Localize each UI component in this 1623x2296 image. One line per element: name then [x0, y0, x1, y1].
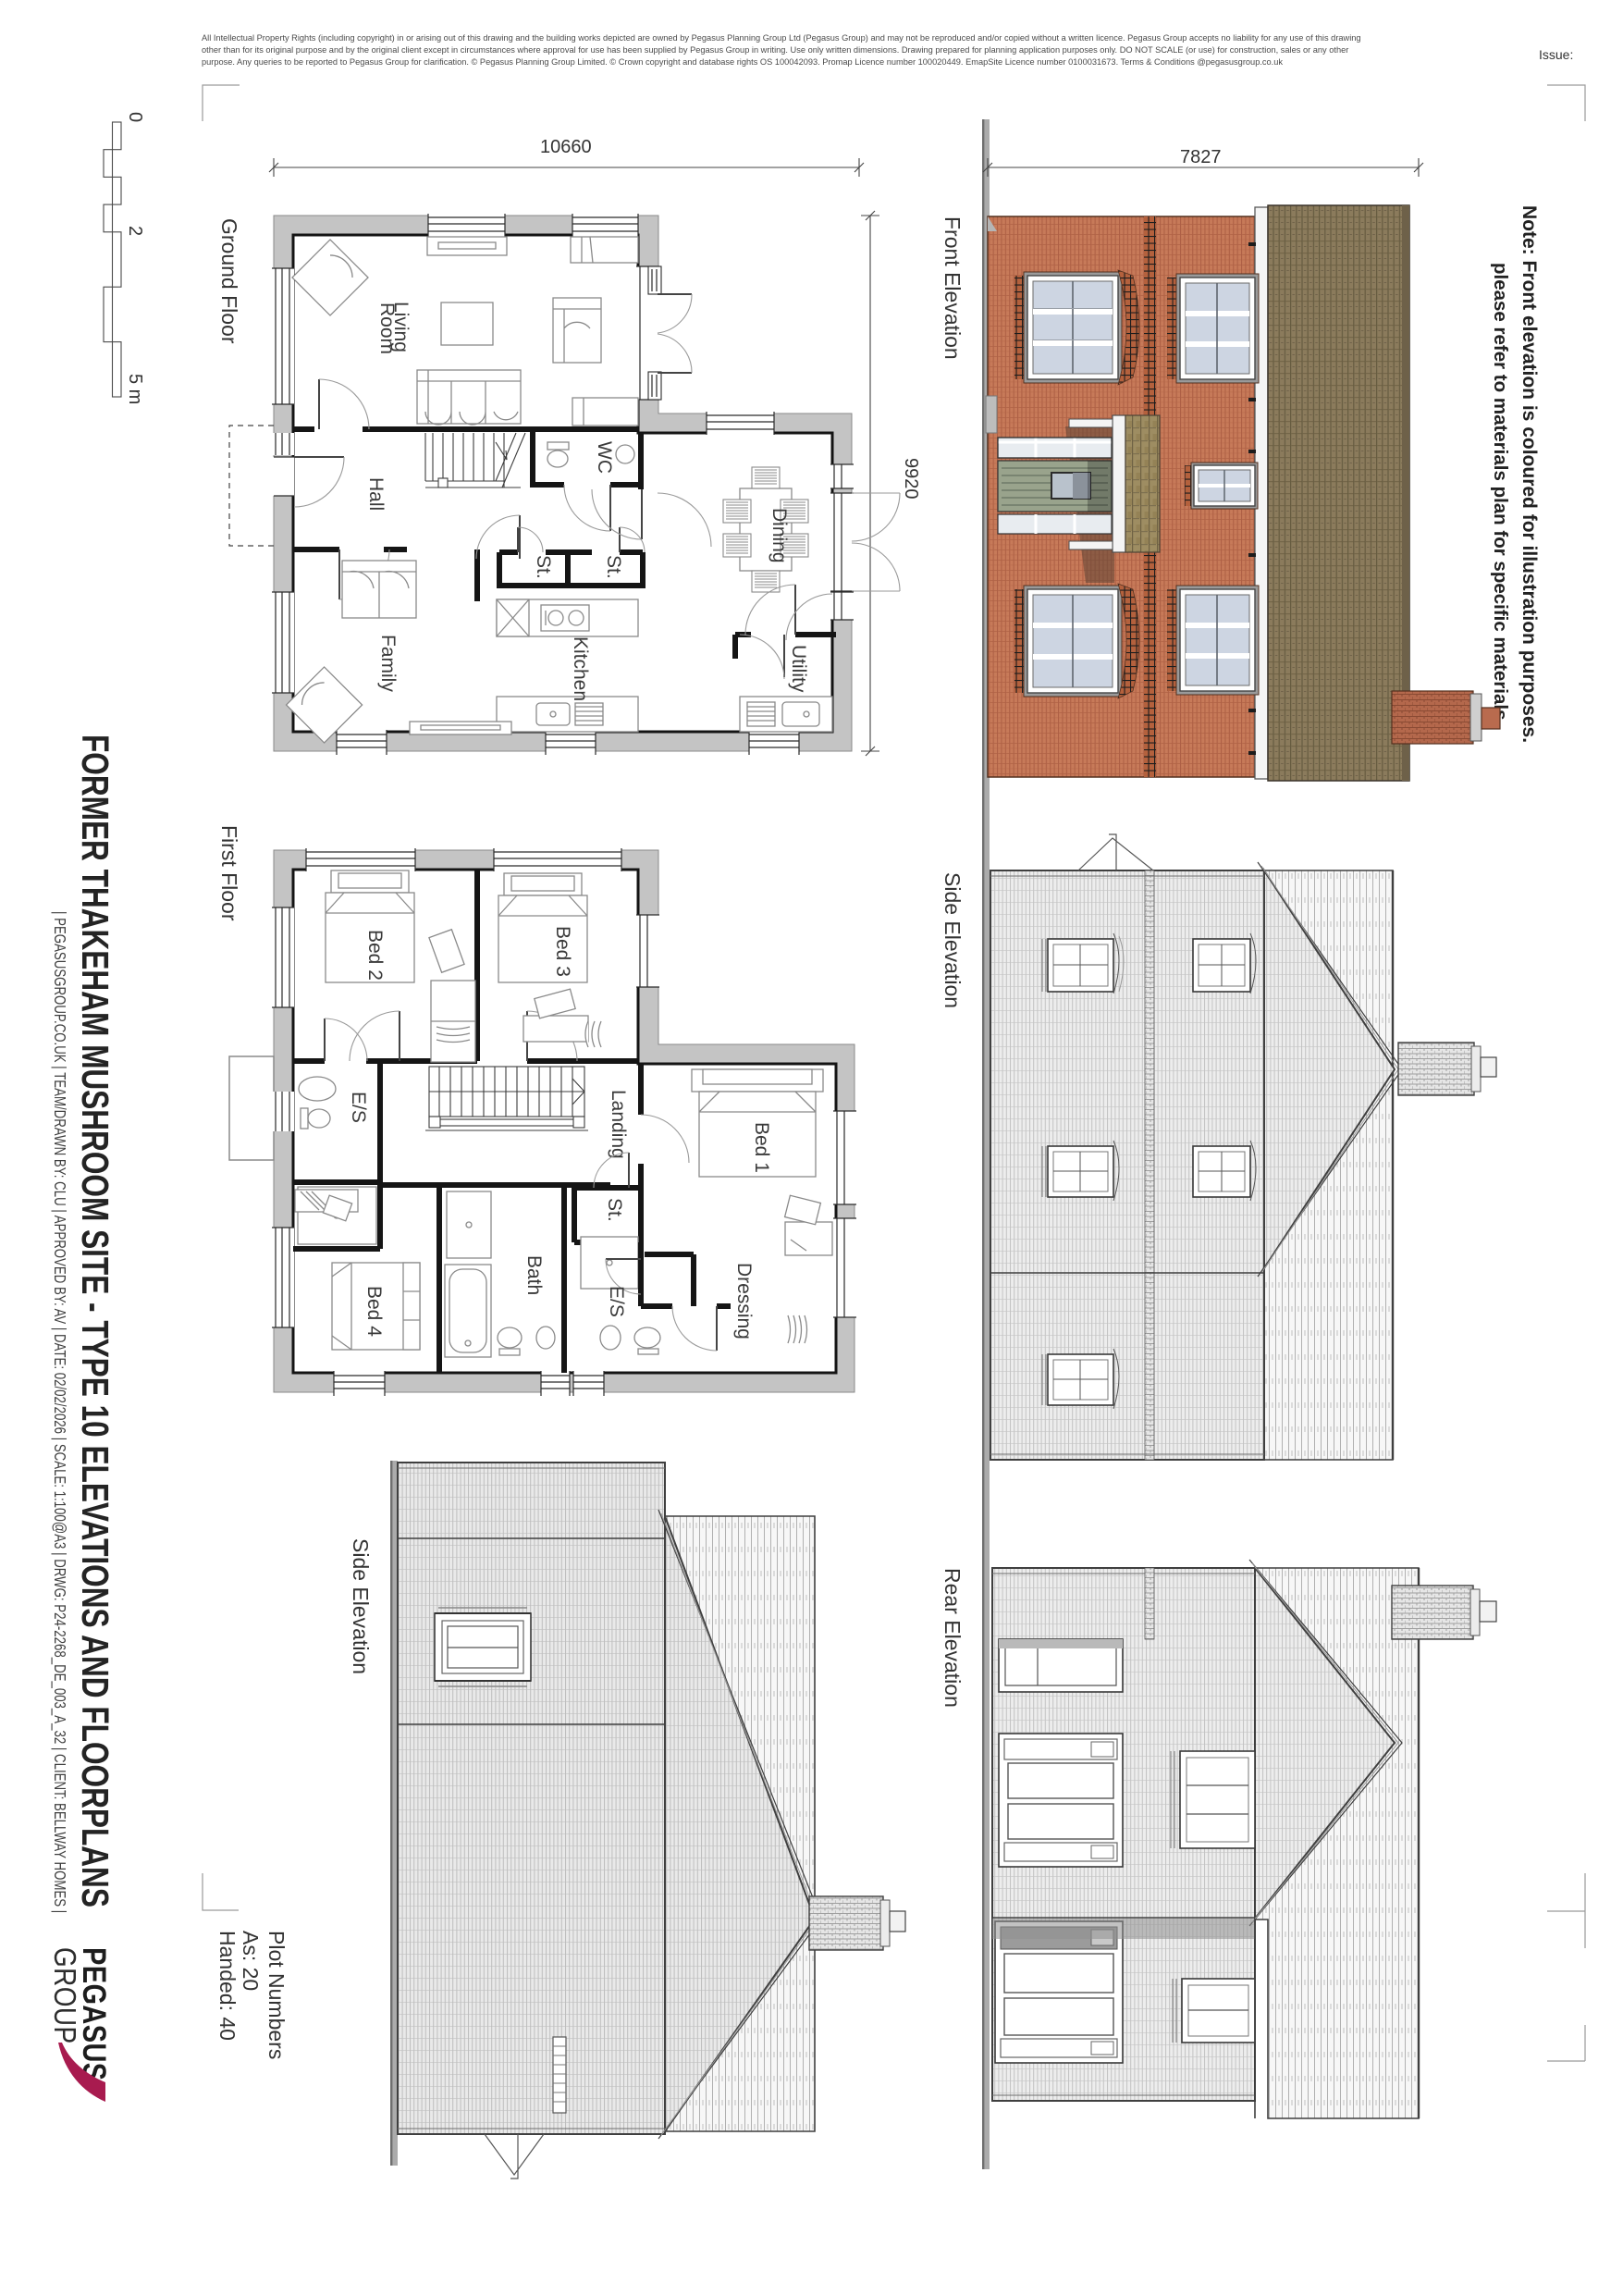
svg-text:10660: 10660	[540, 137, 592, 157]
svg-text:9920: 9920	[901, 458, 921, 500]
svg-text:Side Elevation: Side Elevation	[941, 872, 965, 1008]
svg-text:Dining: Dining	[768, 508, 790, 563]
svg-text:Side Elevation: Side Elevation	[349, 1538, 373, 1674]
svg-text:All Intellectual Property Righ: All Intellectual Property Rights (includ…	[202, 33, 1361, 43]
svg-text:Plot Numbers: Plot Numbers	[264, 1931, 289, 2059]
svg-text:Utility: Utility	[788, 645, 809, 693]
svg-text:Front Elevation: Front Elevation	[941, 216, 965, 360]
svg-text:FORMER THAKEHAM MUSHROOM SITE: FORMER THAKEHAM MUSHROOM SITE - TYPE 10 …	[74, 734, 117, 1907]
svg-text:Note: Front elevation is colou: Note: Front elevation is coloured for il…	[1518, 205, 1540, 743]
svg-text:First Floor: First Floor	[217, 825, 241, 921]
svg-text:St.: St.	[604, 1198, 625, 1222]
svg-text:Issue:: Issue:	[1539, 47, 1573, 62]
svg-text:WC: WC	[594, 441, 615, 474]
svg-text:Bed 4: Bed 4	[363, 1286, 385, 1337]
svg-text:Handed: 40: Handed: 40	[215, 1931, 240, 2041]
svg-text:St.: St.	[603, 555, 624, 579]
svg-text:Rear Elevation: Rear Elevation	[941, 1568, 965, 1708]
svg-text:0: 0	[125, 112, 145, 122]
svg-text:Family: Family	[377, 635, 399, 692]
svg-text:Dressing: Dressing	[733, 1263, 755, 1339]
svg-text:other than for its original pu: other than for its original purpose and …	[202, 45, 1348, 55]
svg-text:Kitchen: Kitchen	[570, 636, 591, 701]
svg-text:Bed 1: Bed 1	[751, 1122, 772, 1173]
svg-text:St.: St.	[533, 555, 554, 579]
svg-text:5 m: 5 m	[125, 374, 145, 404]
svg-text:| PEGASUSGROUP.CO.UK | TEAM: | PEGASUSGROUP.CO.UK | TEAM/DRAWN BY: CL…	[51, 911, 68, 1913]
svg-text:E/S: E/S	[606, 1286, 627, 1317]
svg-text:Bed 2: Bed 2	[364, 930, 386, 981]
svg-text:purpose. Any queries to be re: purpose. Any queries to be reported to P…	[202, 57, 1283, 67]
svg-text:E/S: E/S	[348, 1092, 369, 1123]
svg-text:As: 20: As: 20	[239, 1931, 263, 1991]
svg-text:Bed 3: Bed 3	[552, 926, 573, 977]
svg-text:Bath: Bath	[523, 1255, 545, 1295]
svg-text:Landing: Landing	[608, 1090, 629, 1159]
svg-text:please refer to materials plan: please refer to materials plan for speci…	[1490, 263, 1511, 725]
svg-text:GROUP: GROUP	[47, 1947, 82, 2044]
svg-text:2: 2	[125, 226, 145, 236]
svg-text:Hall: Hall	[365, 477, 387, 511]
svg-text:Room: Room	[376, 302, 398, 354]
svg-text:Ground Floor: Ground Floor	[217, 218, 241, 344]
svg-text:7827: 7827	[1180, 147, 1222, 167]
